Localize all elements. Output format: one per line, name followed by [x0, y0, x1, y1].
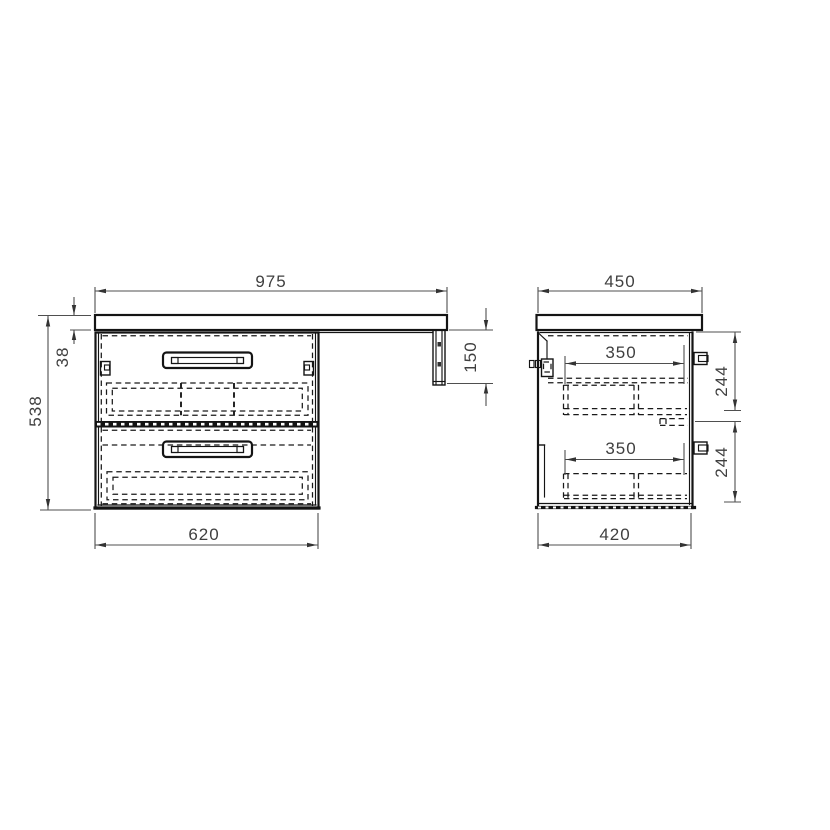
dim-total-depth: 450 [538, 272, 702, 313]
dim-bottom-drawer-height: 244 [695, 422, 741, 503]
dim-label-538: 538 [26, 395, 45, 426]
front-view [95, 315, 447, 509]
technical-drawing-page: 975 38 538 150 [0, 0, 830, 830]
bottom-drawer-handle [163, 442, 252, 458]
dim-label-244-bottom: 244 [712, 446, 731, 477]
dim-label-975: 975 [255, 272, 286, 291]
dim-cabinet-width: 620 [95, 513, 318, 549]
dim-bottom-drawer-depth: 350 [565, 439, 684, 475]
dim-label-350-bottom: 350 [605, 439, 636, 458]
dim-label-620: 620 [188, 525, 219, 544]
side-countertop [537, 315, 703, 330]
vanity-cabinet-drawing: 975 38 538 150 [0, 0, 830, 830]
side-wall-bracket-top [694, 353, 708, 365]
dim-cabinet-depth: 420 [538, 513, 691, 549]
dim-label-350-top: 350 [605, 343, 636, 362]
dim-top-drawer-height: 244 [696, 332, 741, 411]
side-front-drawer-clip [530, 359, 554, 377]
front-support-bracket [433, 330, 445, 385]
dim-total-width: 975 [95, 272, 447, 313]
front-bottom-drawer-hidden-outline [107, 472, 308, 500]
front-countertop [95, 315, 447, 330]
dim-total-height: 538 [26, 316, 91, 511]
dim-label-150: 150 [461, 341, 480, 372]
dim-bracket-height: 150 [447, 308, 493, 406]
top-drawer-handle [163, 353, 252, 369]
front-cabinet-body [96, 333, 319, 509]
front-top-drawer-hidden-outline [107, 383, 309, 415]
dim-countertop-thickness: 38 [38, 297, 91, 367]
dim-label-38: 38 [53, 347, 72, 368]
dim-label-244-top: 244 [712, 365, 731, 396]
dim-label-420: 420 [599, 525, 630, 544]
dim-label-450: 450 [604, 272, 635, 291]
front-drawer-divider [96, 421, 319, 428]
side-wall-bracket-bottom [694, 442, 708, 454]
